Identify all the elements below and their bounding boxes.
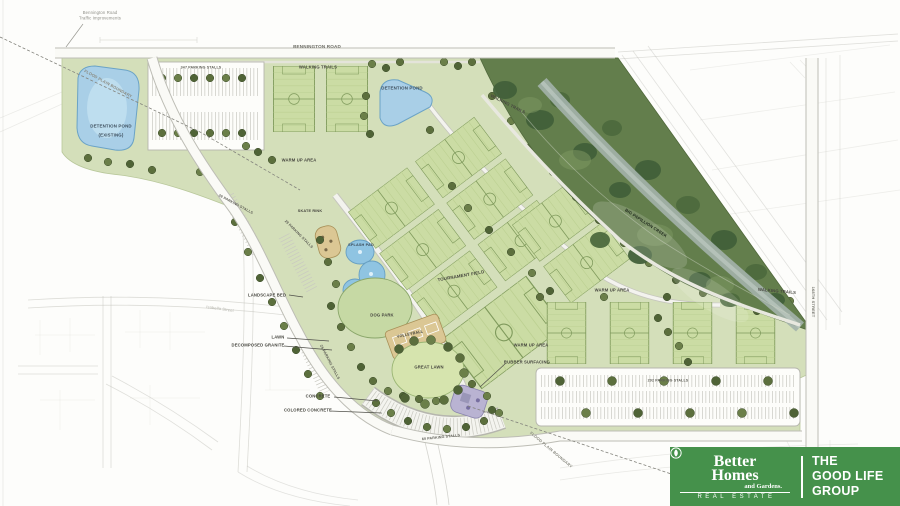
tree-icon	[366, 130, 374, 138]
tree-icon	[448, 182, 456, 190]
brand-word-gardens: and Gardens.	[678, 483, 782, 490]
tree-icon	[444, 343, 453, 352]
tree-icon	[480, 417, 488, 425]
tree-icon	[460, 369, 469, 378]
tree-icon	[464, 204, 472, 212]
site-plan: Bennington Road Traffic Improvements BEN…	[0, 0, 900, 506]
tree-icon	[382, 64, 390, 72]
tree-icon	[206, 74, 214, 82]
tree-icon	[222, 74, 230, 82]
tree-icon	[660, 377, 669, 386]
tree-icon	[600, 293, 608, 301]
tree-icon	[360, 112, 368, 120]
tree-icon	[324, 258, 332, 266]
tree-icon	[421, 400, 430, 409]
tree-icon	[440, 396, 449, 405]
logo-divider	[801, 456, 803, 498]
tree-icon	[347, 343, 355, 351]
tree-icon	[764, 377, 773, 386]
tree-icon	[280, 322, 288, 330]
tree-icon	[495, 409, 503, 417]
soccer-field	[326, 66, 367, 132]
tree-icon	[410, 337, 419, 346]
tree-icon	[664, 328, 672, 336]
tree-icon	[316, 392, 324, 400]
tree-icon	[357, 363, 365, 371]
tree-icon	[546, 287, 554, 295]
tree-icon	[432, 397, 440, 405]
tree-icon	[423, 423, 431, 431]
tree-icon	[158, 129, 166, 137]
tree-icon	[148, 166, 156, 174]
tree-icon	[654, 314, 662, 322]
tree-icon	[238, 129, 246, 137]
tree-icon	[242, 142, 250, 150]
tree-icon	[488, 406, 496, 414]
tree-icon	[244, 248, 252, 256]
tree-icon	[238, 74, 246, 82]
tree-icon	[712, 377, 721, 386]
tree-icon	[456, 354, 465, 363]
tree-icon	[462, 423, 470, 431]
tree-icon	[790, 409, 799, 418]
tree-icon	[454, 62, 462, 70]
long-parking-lot	[536, 368, 800, 426]
tree-icon	[468, 58, 476, 66]
tree-icon	[454, 386, 463, 395]
tree-icon	[304, 370, 312, 378]
tree-icon	[634, 409, 643, 418]
tree-icon	[686, 409, 695, 418]
tree-icon	[190, 74, 198, 82]
site-plan-svg	[0, 0, 900, 506]
tree-icon	[401, 394, 410, 403]
leaf-icon	[670, 447, 682, 459]
tree-icon	[222, 129, 230, 137]
tree-icon	[427, 336, 436, 345]
tree-icon	[443, 425, 451, 433]
tree-icon	[362, 92, 370, 100]
soccer-field	[610, 302, 649, 364]
brand-word-homes: Homes	[711, 468, 758, 484]
tree-icon	[440, 58, 448, 66]
tree-icon	[663, 293, 671, 301]
tree-icon	[84, 154, 92, 162]
tree-icon	[483, 392, 491, 400]
tree-icon	[485, 226, 493, 234]
tree-icon	[384, 387, 392, 395]
tree-icon	[395, 345, 404, 354]
tree-icon	[316, 236, 324, 244]
group-line: GROUP	[812, 484, 883, 499]
tree-icon	[327, 302, 335, 310]
tree-icon	[254, 148, 262, 156]
tree-icon	[738, 409, 747, 418]
tree-icon	[174, 74, 182, 82]
tree-icon	[528, 269, 536, 277]
tree-icon	[404, 417, 412, 425]
tree-icon	[256, 274, 264, 282]
tree-icon	[468, 380, 476, 388]
tree-icon	[387, 409, 395, 417]
tree-icon	[426, 126, 434, 134]
tree-icon	[337, 323, 345, 331]
tree-icon	[206, 129, 214, 137]
group-name: THE GOOD LIFE GROUP	[812, 454, 883, 500]
tree-icon	[684, 358, 692, 366]
tree-icon	[608, 377, 617, 386]
bhg-logo: Better Homes and Gardens. REAL ESTATE TH…	[670, 447, 900, 506]
soccer-field	[273, 66, 314, 132]
tree-icon	[126, 160, 134, 168]
tree-icon	[582, 409, 591, 418]
group-line: GOOD LIFE	[812, 469, 883, 484]
tree-icon	[104, 158, 112, 166]
soccer-field	[547, 302, 586, 364]
tree-icon	[675, 342, 683, 350]
tree-icon	[507, 248, 515, 256]
tree-icon	[368, 60, 376, 68]
tree-icon	[268, 156, 276, 164]
logo-rule	[680, 492, 790, 493]
tree-icon	[396, 58, 404, 66]
soccer-field	[673, 302, 712, 364]
tree-icon	[268, 298, 276, 306]
tree-icon	[332, 280, 340, 288]
tree-icon	[556, 377, 565, 386]
brand-tagline: REAL ESTATE	[681, 494, 792, 500]
tree-icon	[369, 377, 377, 385]
tree-icon	[536, 293, 544, 301]
bhg-wordmark: Better Homes and Gardens. REAL ESTATE	[678, 454, 792, 500]
group-line: THE	[812, 454, 883, 469]
